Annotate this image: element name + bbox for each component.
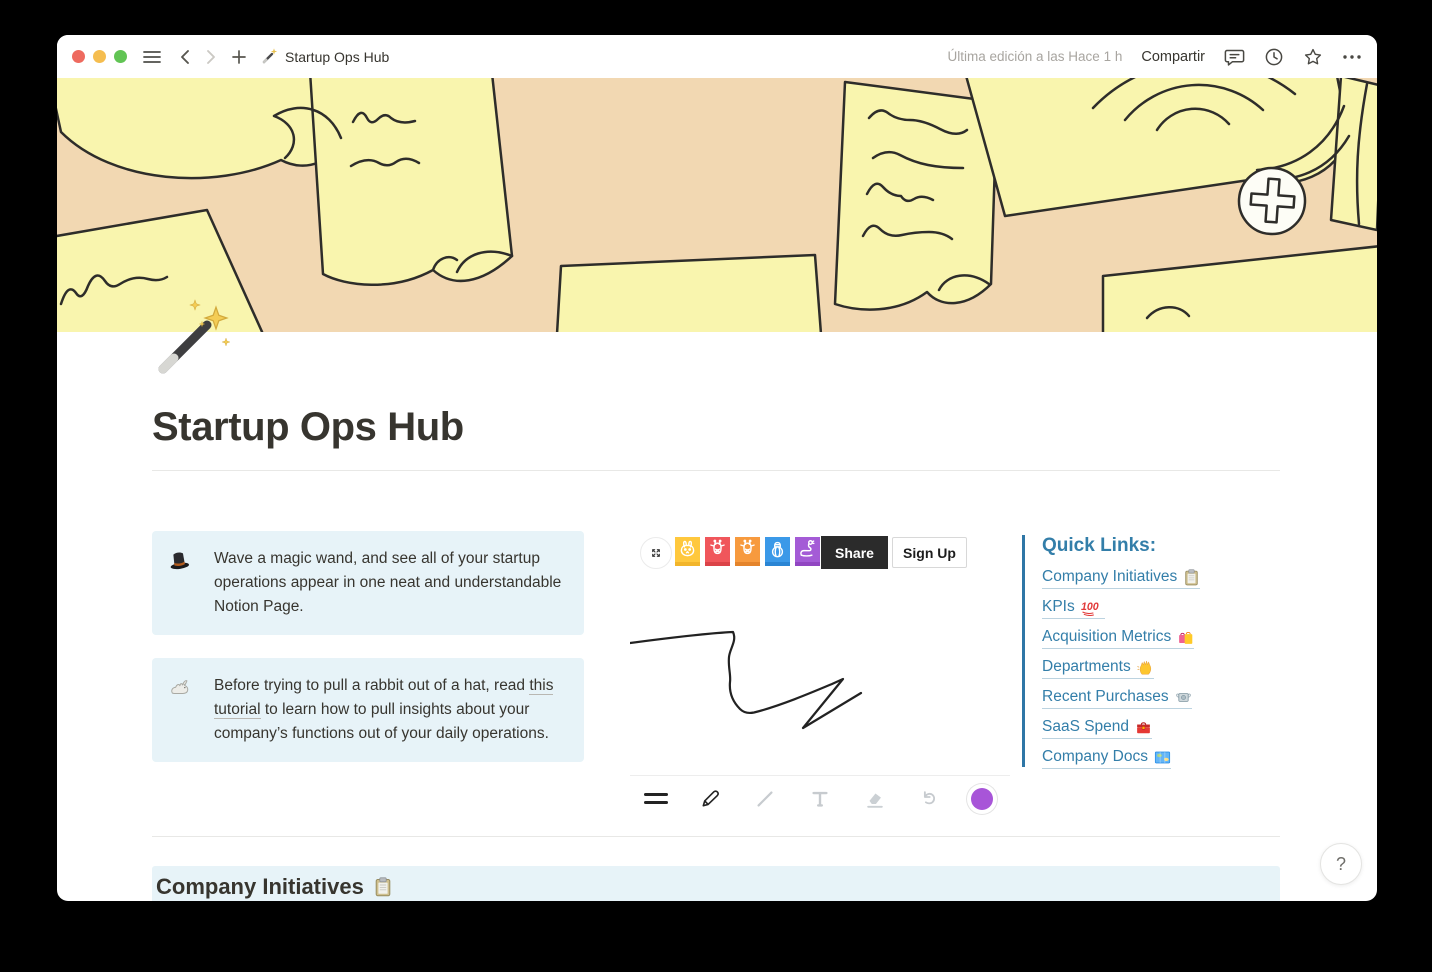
- help-label: ?: [1336, 854, 1346, 875]
- page-title[interactable]: Startup Ops Hub: [152, 405, 464, 450]
- rabbit-icon: [168, 674, 198, 746]
- hundred-points-icon: 100: [1081, 599, 1105, 616]
- quick-link-departments[interactable]: Departments: [1042, 658, 1154, 679]
- color-picker-dot[interactable]: [970, 785, 998, 813]
- last-edited-label: Última edición a las Hace 1 h: [948, 49, 1123, 64]
- world-map-icon: [1154, 749, 1171, 766]
- quick-link-kpis[interactable]: KPIs 100: [1042, 598, 1105, 619]
- quick-link-recent-purchases[interactable]: Recent Purchases: [1042, 688, 1192, 709]
- clipboard-icon: [373, 877, 393, 897]
- quick-link-saas-spend[interactable]: SaaS Spend: [1042, 718, 1152, 739]
- collaborator-avatar-rabbit: [675, 537, 700, 566]
- whiteboard-signup-button[interactable]: Sign Up: [892, 537, 967, 568]
- comments-icon[interactable]: [1224, 47, 1245, 67]
- app-window: Startup Ops Hub Última edición a las Hac…: [57, 35, 1377, 901]
- line-tool[interactable]: [751, 785, 779, 813]
- collaborator-avatar-giraffe: [705, 537, 730, 566]
- quick-link-company-docs[interactable]: Company Docs: [1042, 748, 1171, 769]
- close-window-button[interactable]: [72, 50, 85, 63]
- sidebar-menu-icon[interactable]: [143, 50, 161, 64]
- divider: [152, 470, 1280, 471]
- shopping-bags-icon: [1177, 629, 1194, 646]
- zoom-window-button[interactable]: [114, 50, 127, 63]
- list-item: Recent Purchases: [1042, 690, 1280, 707]
- whiteboard-toolbar: [630, 775, 1010, 821]
- help-button[interactable]: ?: [1320, 843, 1362, 885]
- section-heading-text: Company Initiatives: [156, 874, 364, 900]
- page-icon-magic-wand[interactable]: [149, 293, 237, 381]
- magic-wand-icon: [261, 48, 278, 65]
- new-tab-icon[interactable]: [231, 49, 247, 65]
- stroke-width-tool[interactable]: [642, 785, 670, 813]
- collaborator-avatar-giraffe: [735, 537, 760, 566]
- section-company-initiatives[interactable]: Company Initiatives: [152, 866, 1280, 901]
- collaborator-avatar-lantern: [765, 537, 790, 566]
- fullscreen-button[interactable]: [640, 537, 672, 569]
- quick-links-block: Quick Links: Company Initiatives KPIs 10…: [1022, 535, 1280, 767]
- quick-links-heading: Quick Links:: [1042, 535, 1280, 557]
- clipboard-icon: [1183, 569, 1200, 586]
- whiteboard-embed: Share Sign Up: [630, 535, 1010, 820]
- text-tool[interactable]: [806, 785, 834, 813]
- eraser-tool[interactable]: [861, 785, 889, 813]
- titlebar: Startup Ops Hub Última edición a las Hac…: [57, 35, 1377, 78]
- callout-text-before: Before trying to pull a rabbit out of a …: [214, 677, 529, 694]
- list-item: Departments: [1042, 660, 1280, 677]
- list-item: Acquisition Metrics: [1042, 630, 1280, 647]
- share-menu-button[interactable]: Compartir: [1141, 49, 1205, 65]
- list-item: KPIs 100: [1042, 600, 1280, 617]
- quick-link-acquisition-metrics[interactable]: Acquisition Metrics: [1042, 628, 1194, 649]
- content-columns: Wave a magic wand, and see all of your s…: [152, 529, 1280, 820]
- money-with-wings-icon: [1175, 689, 1192, 706]
- callout-text: Wave a magic wand, and see all of your s…: [214, 547, 568, 619]
- traffic-lights: [72, 50, 127, 63]
- quick-link-company-initiatives[interactable]: Company Initiatives: [1042, 568, 1200, 589]
- callout-text-after: to learn how to pull insights about your…: [214, 701, 549, 742]
- whiteboard-column: Share Sign Up: [630, 529, 1010, 820]
- callout-magic-wand: Wave a magic wand, and see all of your s…: [152, 531, 584, 635]
- minimize-window-button[interactable]: [93, 50, 106, 63]
- list-item: Company Initiatives: [1042, 570, 1280, 587]
- toolbox-icon: [1135, 719, 1152, 736]
- whiteboard-share-button[interactable]: Share: [821, 536, 888, 569]
- top-hat-icon: [168, 547, 198, 619]
- back-icon[interactable]: [178, 49, 192, 65]
- svg-text:100: 100: [1081, 600, 1099, 612]
- favorite-star-icon[interactable]: [1303, 47, 1323, 67]
- collaborator-avatar-snake: [795, 537, 820, 566]
- page-cover-image: [57, 78, 1377, 332]
- undo-tool[interactable]: [915, 785, 943, 813]
- divider: [152, 836, 1280, 837]
- quick-links-column: Quick Links: Company Initiatives KPIs 10…: [1022, 529, 1280, 780]
- callout-rabbit: Before trying to pull a rabbit out of a …: [152, 658, 584, 762]
- list-item: Company Docs: [1042, 750, 1280, 767]
- forward-icon[interactable]: [204, 49, 218, 65]
- callout-text: Before trying to pull a rabbit out of a …: [214, 674, 568, 746]
- waving-hand-icon: [1137, 659, 1154, 676]
- pen-tool[interactable]: [697, 785, 725, 813]
- list-item: SaaS Spend: [1042, 720, 1280, 737]
- breadcrumb-page-title[interactable]: Startup Ops Hub: [285, 49, 389, 65]
- whiteboard-header: Share Sign Up: [630, 535, 1010, 569]
- history-clock-icon[interactable]: [1264, 47, 1284, 67]
- more-options-icon[interactable]: [1342, 54, 1362, 60]
- callout-column: Wave a magic wand, and see all of your s…: [152, 529, 584, 762]
